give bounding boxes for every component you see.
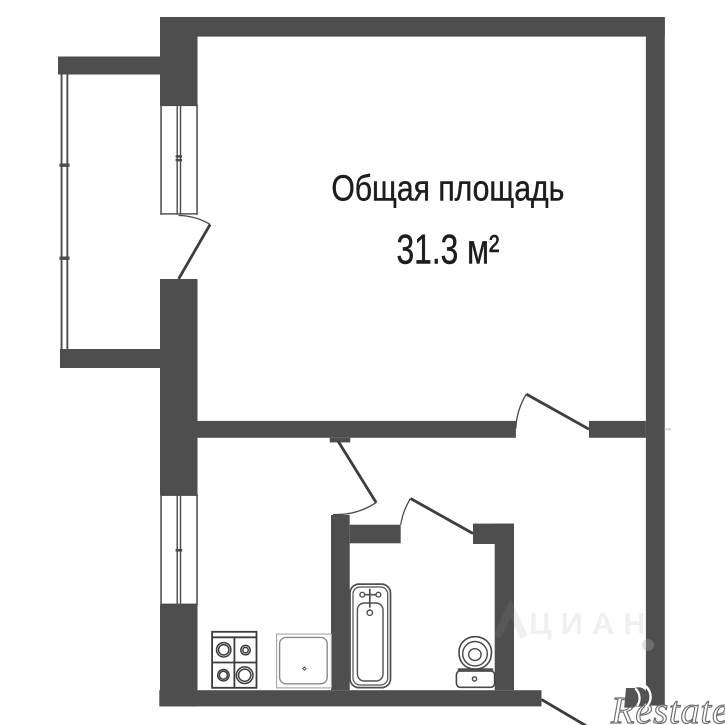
svg-text:Общая площадь: Общая площадь	[331, 169, 564, 209]
svg-text:31.3 м²: 31.3 м²	[397, 226, 500, 272]
svg-text:ЦИАН: ЦИАН	[529, 606, 655, 641]
